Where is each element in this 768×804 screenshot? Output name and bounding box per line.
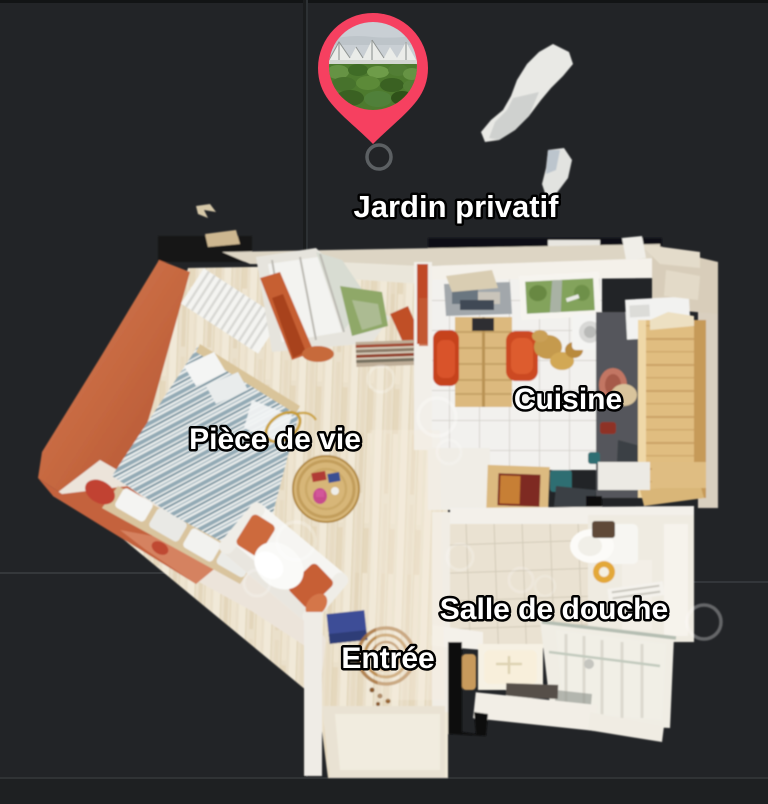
svg-text:Cuisine: Cuisine bbox=[514, 383, 622, 416]
svg-text:Salle de douche: Salle de douche bbox=[440, 593, 668, 626]
svg-text:Pièce de vie: Pièce de vie bbox=[189, 423, 361, 456]
svg-text:Jardin privatif: Jardin privatif bbox=[354, 189, 560, 224]
svg-text:Entrée: Entrée bbox=[341, 642, 434, 675]
